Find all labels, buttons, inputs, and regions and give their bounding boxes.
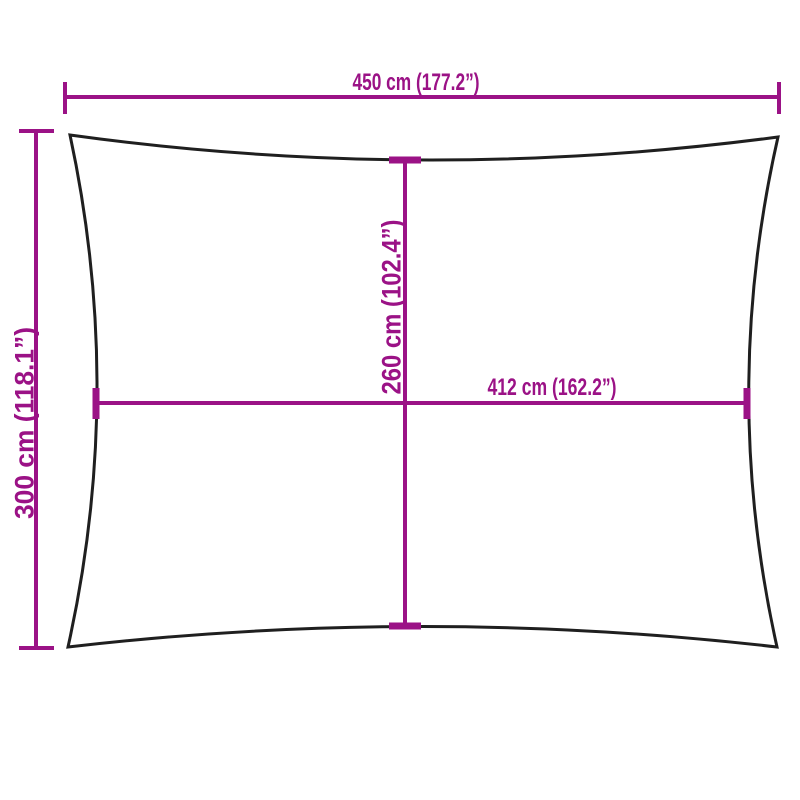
- dimension-diagram: 450 cm (177.2”) 300 cm (118.1”) 260 cm (…: [0, 0, 800, 800]
- inner-height-dimension: 260 cm (102.4”): [377, 160, 422, 627]
- diagram-svg: 450 cm (177.2”) 300 cm (118.1”) 260 cm (…: [0, 0, 800, 800]
- overall-width-label: 450 cm (177.2”): [353, 69, 480, 96]
- inner-width-label: 412 cm (162.2”): [488, 374, 617, 401]
- inner-width-dimension: 412 cm (162.2”): [96, 374, 748, 419]
- inner-height-label: 260 cm (102.4”): [377, 220, 407, 395]
- overall-width-dimension: 450 cm (177.2”): [65, 69, 779, 114]
- overall-height-label: 300 cm (118.1”): [10, 327, 40, 519]
- overall-height-dimension: 300 cm (118.1”): [10, 131, 55, 648]
- sail-outline: [68, 135, 778, 647]
